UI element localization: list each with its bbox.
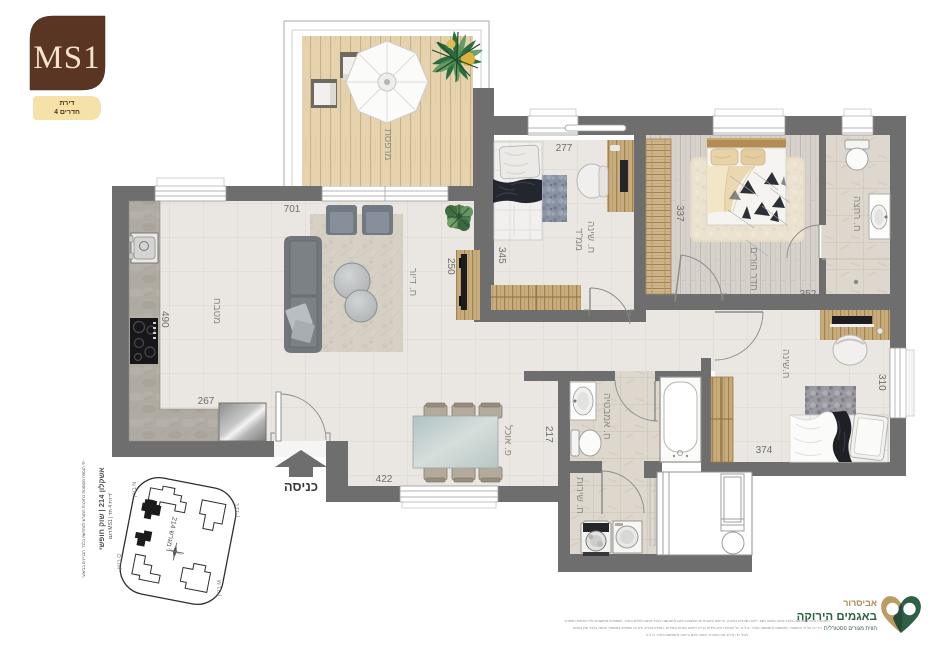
svg-text:422: 422 xyxy=(376,474,393,485)
svg-text:אביסרור: אביסרור xyxy=(843,598,877,608)
svg-text:217: 217 xyxy=(543,426,554,443)
svg-text:בניין N: בניין N xyxy=(132,482,138,497)
svg-text:מרפסת: מרפסת xyxy=(382,129,393,161)
svg-text:490: 490 xyxy=(159,311,170,328)
svg-text:374: 374 xyxy=(756,445,773,456)
svg-text:267: 267 xyxy=(198,396,215,407)
svg-text:חדר הורים: חדר הורים xyxy=(748,247,759,291)
svg-text:ח. דיור: ח. דיור xyxy=(407,268,418,296)
svg-text:הרי זה על פי התקנות. התמונות ל: הרי זה על פי התקנות. התמונות להמחשה בלבד… xyxy=(572,626,821,630)
svg-text:לעיל כדי לחייב את החברה. עיצוב: לעיל כדי לחייב את החברה. עיצוב פנים וריה… xyxy=(646,633,748,637)
svg-text:ממ"ד: ממ"ד xyxy=(573,228,584,251)
svg-text:מטבח: מטבח xyxy=(211,298,222,324)
svg-text:חווית מגורים פסטורלית: חווית מגורים פסטורלית xyxy=(824,625,878,632)
svg-text:אשקלון 214 | שוק חופשי: אשקלון 214 | שוק חופשי xyxy=(97,467,106,550)
svg-text:277: 277 xyxy=(556,143,573,154)
svg-text:310: 310 xyxy=(876,374,887,391)
svg-text:דגם MS1 | דירת 4 חד': דגם MS1 | דירת 4 חד' xyxy=(108,493,114,539)
svg-text:כניסה: כניסה xyxy=(284,479,318,494)
svg-text:ח.שינה: ח.שינה xyxy=(780,349,791,379)
svg-text:בניין M: בניין M xyxy=(217,580,223,596)
svg-text:התוכנית הינה להמחשה בלבד ואינה: התוכנית הינה להמחשה בלבד ואינה מהווה מצג… xyxy=(564,619,829,623)
svg-text:ח. שינה: ח. שינה xyxy=(585,221,596,253)
svg-text:701: 701 xyxy=(284,204,301,215)
svg-text:4 חדרים: 4 חדרים xyxy=(54,109,80,116)
svg-text:"יחי הנספח מסומנות בתוכנית המג: "יחי הנספח מסומנות בתוכנית המגרש להמחשה … xyxy=(81,461,86,578)
svg-text:ח. רחצה: ח. רחצה xyxy=(851,196,862,232)
svg-text:250: 250 xyxy=(445,258,456,275)
svg-text:ח. אמבטיה: ח. אמבטיה xyxy=(601,393,612,440)
svg-text:ח. שירות: ח. שירות xyxy=(574,477,585,514)
svg-text:337: 337 xyxy=(674,205,685,222)
svg-text:בניין L: בניין L xyxy=(235,503,241,517)
svg-text:פ. אוכל: פ. אוכל xyxy=(502,425,514,456)
svg-text:דירת: דירת xyxy=(59,100,74,107)
svg-text:בניין O: בניין O xyxy=(117,553,123,569)
svg-text:MS1: MS1 xyxy=(33,40,100,76)
svg-text:345: 345 xyxy=(496,247,507,264)
svg-text:352: 352 xyxy=(800,289,817,300)
